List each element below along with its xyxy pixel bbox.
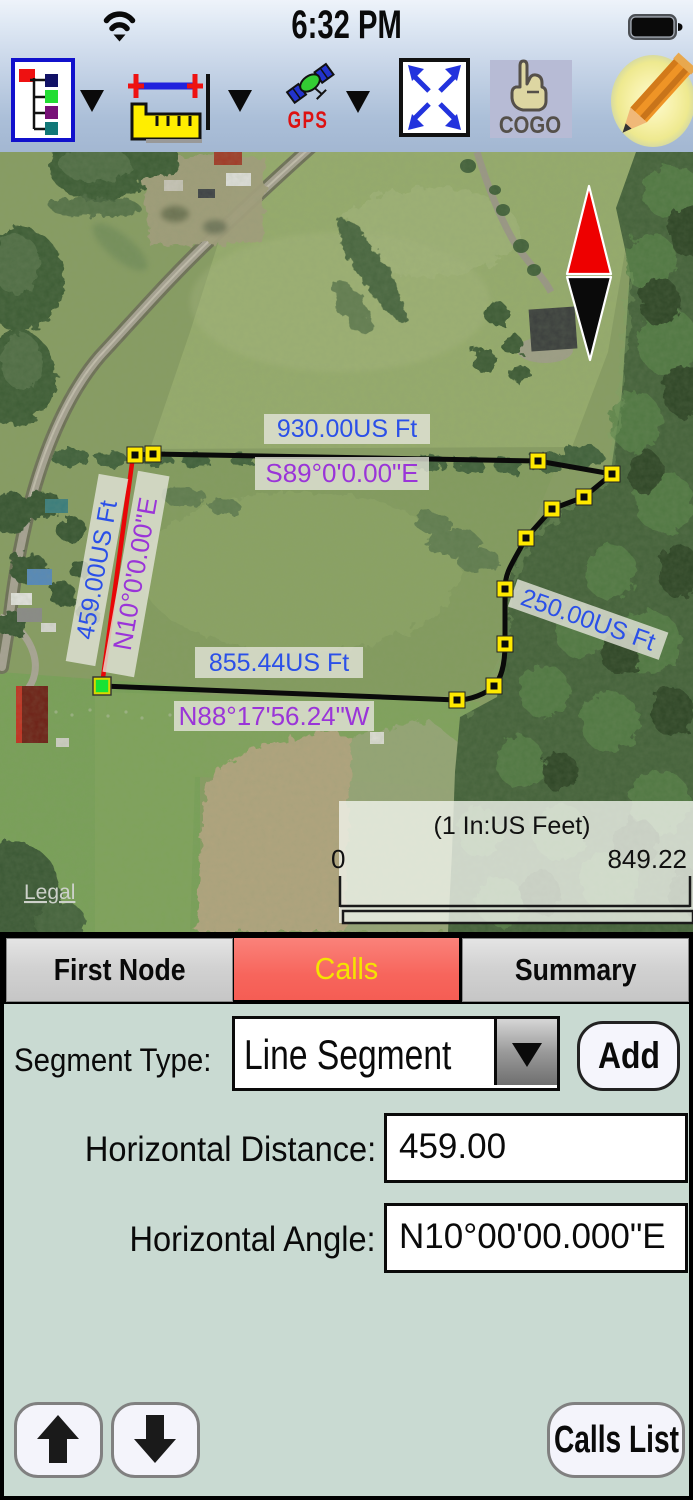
svg-text:S89°0'0.00"E: S89°0'0.00"E xyxy=(265,458,418,488)
svg-text:849.22: 849.22 xyxy=(607,844,687,874)
svg-text:(1 In:US Feet): (1 In:US Feet) xyxy=(434,812,591,840)
svg-text:COGO: COGO xyxy=(499,111,561,138)
svg-text:N88°17'56.24"W: N88°17'56.24"W xyxy=(179,701,370,731)
svg-text:0: 0 xyxy=(331,844,345,874)
svg-text:855.44US Ft: 855.44US Ft xyxy=(209,649,349,677)
svg-text:GPS: GPS xyxy=(288,107,329,133)
svg-text:930.00US Ft: 930.00US Ft xyxy=(277,415,417,443)
svg-text:Legal: Legal xyxy=(24,881,75,904)
